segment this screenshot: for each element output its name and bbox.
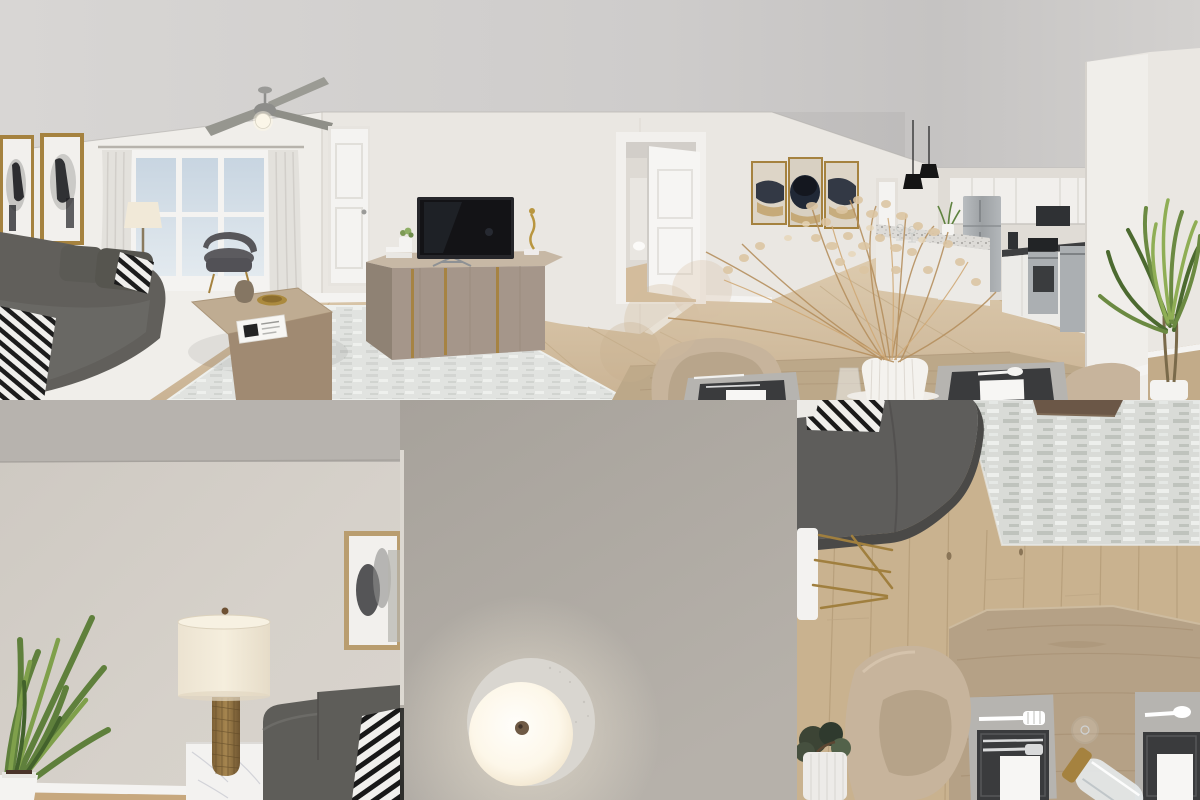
dried-flower-vase [862,358,929,400]
triptych-left [752,162,786,224]
knife [983,740,1043,741]
place-setting [934,362,1068,400]
microwave [1036,206,1070,226]
lamp-shade [178,622,270,696]
table-vase [235,280,255,303]
place-setting [1135,692,1200,800]
dishwasher [1060,246,1086,332]
panel-living-room-panorama [0,0,1200,400]
floor-knot [1019,549,1023,556]
white-planter [797,722,851,800]
lamp-corner-scene [0,400,400,800]
coffee-table-corner [1033,400,1123,416]
toilet [633,242,645,251]
panel-lamp-shade-top-view [400,400,797,800]
triptych-center [789,158,822,226]
framed-art [344,531,400,650]
napkin [1157,754,1193,800]
floor-knot [947,552,952,560]
curtain-right [268,150,303,306]
living-room-panorama-scene [0,0,1200,400]
panel-lamp-corner-closeup [0,400,400,800]
triptych-art [752,158,858,228]
area-rug [965,400,1200,545]
soil [6,770,32,774]
lamp-top-view-scene [400,400,797,800]
door-knob [362,210,367,215]
range [1028,238,1058,314]
wine-glass [1072,717,1098,743]
fan-light [256,114,271,129]
place-setting [967,695,1057,800]
ceiling-band [0,400,400,462]
tv [417,197,514,266]
napkin [1000,756,1040,800]
panel-overhead-dining-view [797,400,1200,800]
overhead-dining-scene [797,400,1200,800]
finial [222,608,229,615]
interior-door [328,126,370,286]
interior-render-collage [0,0,1200,800]
plant-pot [0,775,38,800]
framed-art [40,133,84,245]
edge-sliver [400,450,404,705]
framed-art [0,135,34,249]
wall-art-left [0,133,84,249]
triptych-right [825,162,858,228]
coffee-maker [1008,232,1018,249]
